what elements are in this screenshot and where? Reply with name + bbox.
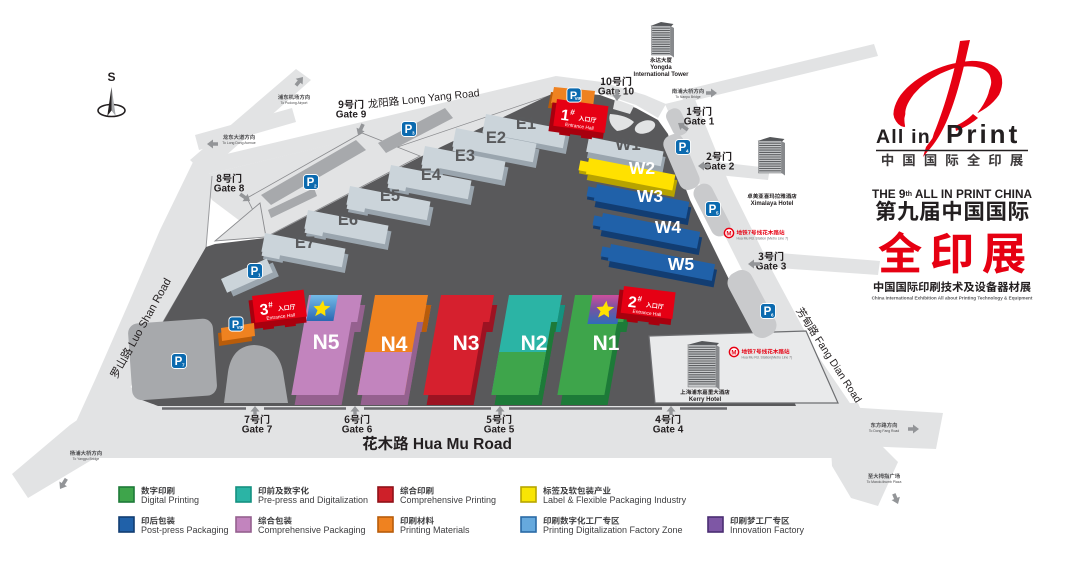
- svg-text:Gate 3: Gate 3: [756, 262, 787, 273]
- svg-text:VIP: VIP: [575, 96, 582, 101]
- svg-text:E5: E5: [380, 187, 400, 205]
- svg-text:4: 4: [686, 148, 689, 153]
- svg-text:E4: E4: [421, 166, 442, 184]
- svg-text:Digital Printing: Digital Printing: [141, 495, 199, 505]
- svg-text:Comprehensive Packaging: Comprehensive Packaging: [258, 525, 366, 535]
- svg-text:Pre-press and Digitalization: Pre-press and Digitalization: [258, 495, 368, 505]
- svg-text:Label & Flexible Packaging Ind: Label & Flexible Packaging Industry: [543, 495, 687, 505]
- svg-text:M: M: [731, 349, 736, 356]
- svg-text:THE 9th ALL IN PRINT CHINA: THE 9th ALL IN PRINT CHINA: [872, 187, 1032, 201]
- svg-text:Kerry Hotel: Kerry Hotel: [689, 397, 722, 403]
- svg-text:E7: E7: [295, 234, 315, 252]
- svg-text:Printing Materials: Printing Materials: [400, 525, 470, 535]
- svg-text:To Maxdo-thumb Plaza: To Maxdo-thumb Plaza: [867, 480, 902, 484]
- svg-text:N5: N5: [313, 331, 340, 354]
- svg-text:Gate 9: Gate 9: [336, 110, 367, 121]
- svg-text:China International Exhibition: China International Exhibition All about…: [872, 296, 1033, 301]
- svg-text:W2: W2: [629, 158, 656, 178]
- svg-text:N2: N2: [521, 332, 548, 355]
- svg-text:Gate 1: Gate 1: [684, 117, 715, 128]
- svg-text:Ximalaya Hotel: Ximalaya Hotel: [751, 201, 794, 207]
- svg-text:6: 6: [771, 312, 774, 317]
- svg-text:To Yangpu Bridge: To Yangpu Bridge: [73, 457, 100, 461]
- svg-text:W5: W5: [668, 254, 695, 274]
- svg-text:N1: N1: [593, 332, 620, 355]
- svg-text:E3: E3: [455, 147, 475, 165]
- svg-text:Printing Digitalization Factor: Printing Digitalization Factory Zone: [543, 525, 683, 535]
- svg-text:To Dong Fang Road: To Dong Fang Road: [869, 429, 899, 433]
- svg-text:N4: N4: [381, 333, 408, 356]
- svg-text:E1: E1: [516, 115, 536, 133]
- svg-text:Gate 8: Gate 8: [214, 184, 245, 195]
- svg-text:N3: N3: [453, 332, 480, 355]
- svg-text:5: 5: [716, 210, 719, 215]
- svg-text:Gate 6: Gate 6: [342, 425, 373, 436]
- svg-text:International Tower: International Tower: [634, 72, 690, 78]
- svg-text:3: 3: [412, 130, 415, 135]
- svg-text:W3: W3: [637, 186, 664, 206]
- svg-text:Gate 4: Gate 4: [653, 425, 684, 436]
- svg-text:All in: All in: [876, 126, 931, 148]
- svg-text:Innovation Factory: Innovation Factory: [730, 525, 805, 535]
- svg-text:S: S: [107, 70, 115, 84]
- svg-text:Hua Mu Rd. Station (Metro Line: Hua Mu Rd. Station (Metro Line 7): [737, 237, 789, 241]
- svg-text:Yongda: Yongda: [650, 65, 672, 71]
- svg-text:M: M: [726, 230, 731, 237]
- svg-text:Hua Mu Road: Hua Mu Road: [413, 436, 512, 453]
- svg-text:W4: W4: [655, 217, 682, 237]
- svg-text:Gate 5: Gate 5: [484, 425, 515, 436]
- svg-text:To Long Dong Avenue: To Long Dong Avenue: [222, 141, 255, 145]
- svg-text:Print: Print: [946, 119, 1020, 149]
- svg-text:Post-press Packaging: Post-press Packaging: [141, 525, 229, 535]
- svg-text:VIP: VIP: [237, 325, 244, 330]
- svg-text:Comprehensive Printing: Comprehensive Printing: [400, 495, 496, 505]
- svg-text:To Pudong Airport: To Pudong Airport: [281, 101, 308, 105]
- svg-text:2: 2: [314, 183, 317, 188]
- svg-text:E2: E2: [486, 129, 506, 147]
- svg-text:To Nanpu Bridge: To Nanpu Bridge: [675, 95, 700, 99]
- svg-text:Gate 7: Gate 7: [242, 425, 273, 436]
- svg-text:W1: W1: [615, 135, 641, 154]
- svg-text:7: 7: [182, 362, 185, 367]
- svg-text:E6: E6: [338, 211, 358, 229]
- svg-text:1: 1: [258, 272, 261, 277]
- svg-text:Hua Mu Rd. Station(Metro Line: Hua Mu Rd. Station(Metro Line 7): [742, 356, 793, 360]
